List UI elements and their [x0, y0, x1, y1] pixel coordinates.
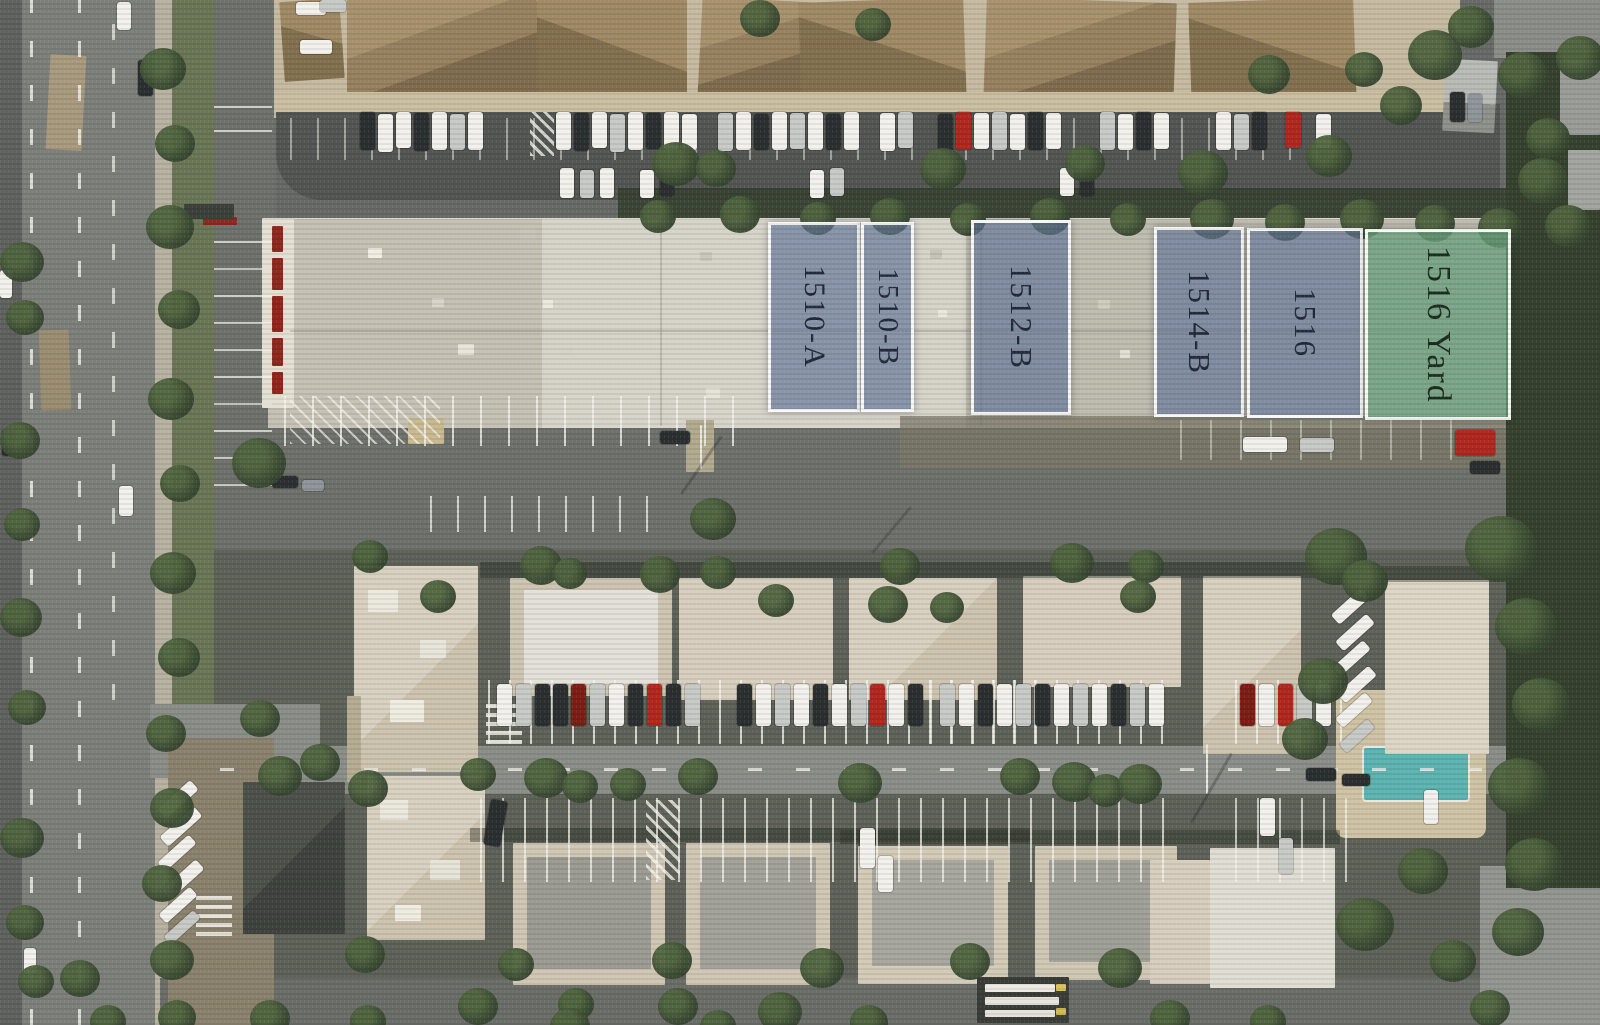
parcel-label: 1516 Yard [1419, 246, 1457, 404]
parcel-1516-yard[interactable]: 1516 Yard [1365, 229, 1511, 420]
parcel-1512-b[interactable]: 1512-B [971, 220, 1071, 415]
parcel-label: 1510-B [871, 268, 904, 367]
parcel-label: 1512-B [1003, 265, 1039, 370]
parcel-label: 1510-A [797, 265, 831, 369]
parcel-1510-a[interactable]: 1510-A [768, 222, 860, 412]
parcel-overlays: 1510-A 1510-B 1512-B 1514-B 1516 1516 Ya… [0, 0, 1600, 1025]
parcel-label: 1514-B [1181, 270, 1217, 375]
parcel-1516[interactable]: 1516 [1247, 228, 1363, 418]
aerial-map: 1510-A 1510-B 1512-B 1514-B 1516 1516 Ya… [0, 0, 1600, 1025]
parcel-label: 1516 [1287, 288, 1323, 358]
parcel-1510-b[interactable]: 1510-B [861, 222, 914, 412]
parcel-1514-b[interactable]: 1514-B [1154, 227, 1244, 417]
